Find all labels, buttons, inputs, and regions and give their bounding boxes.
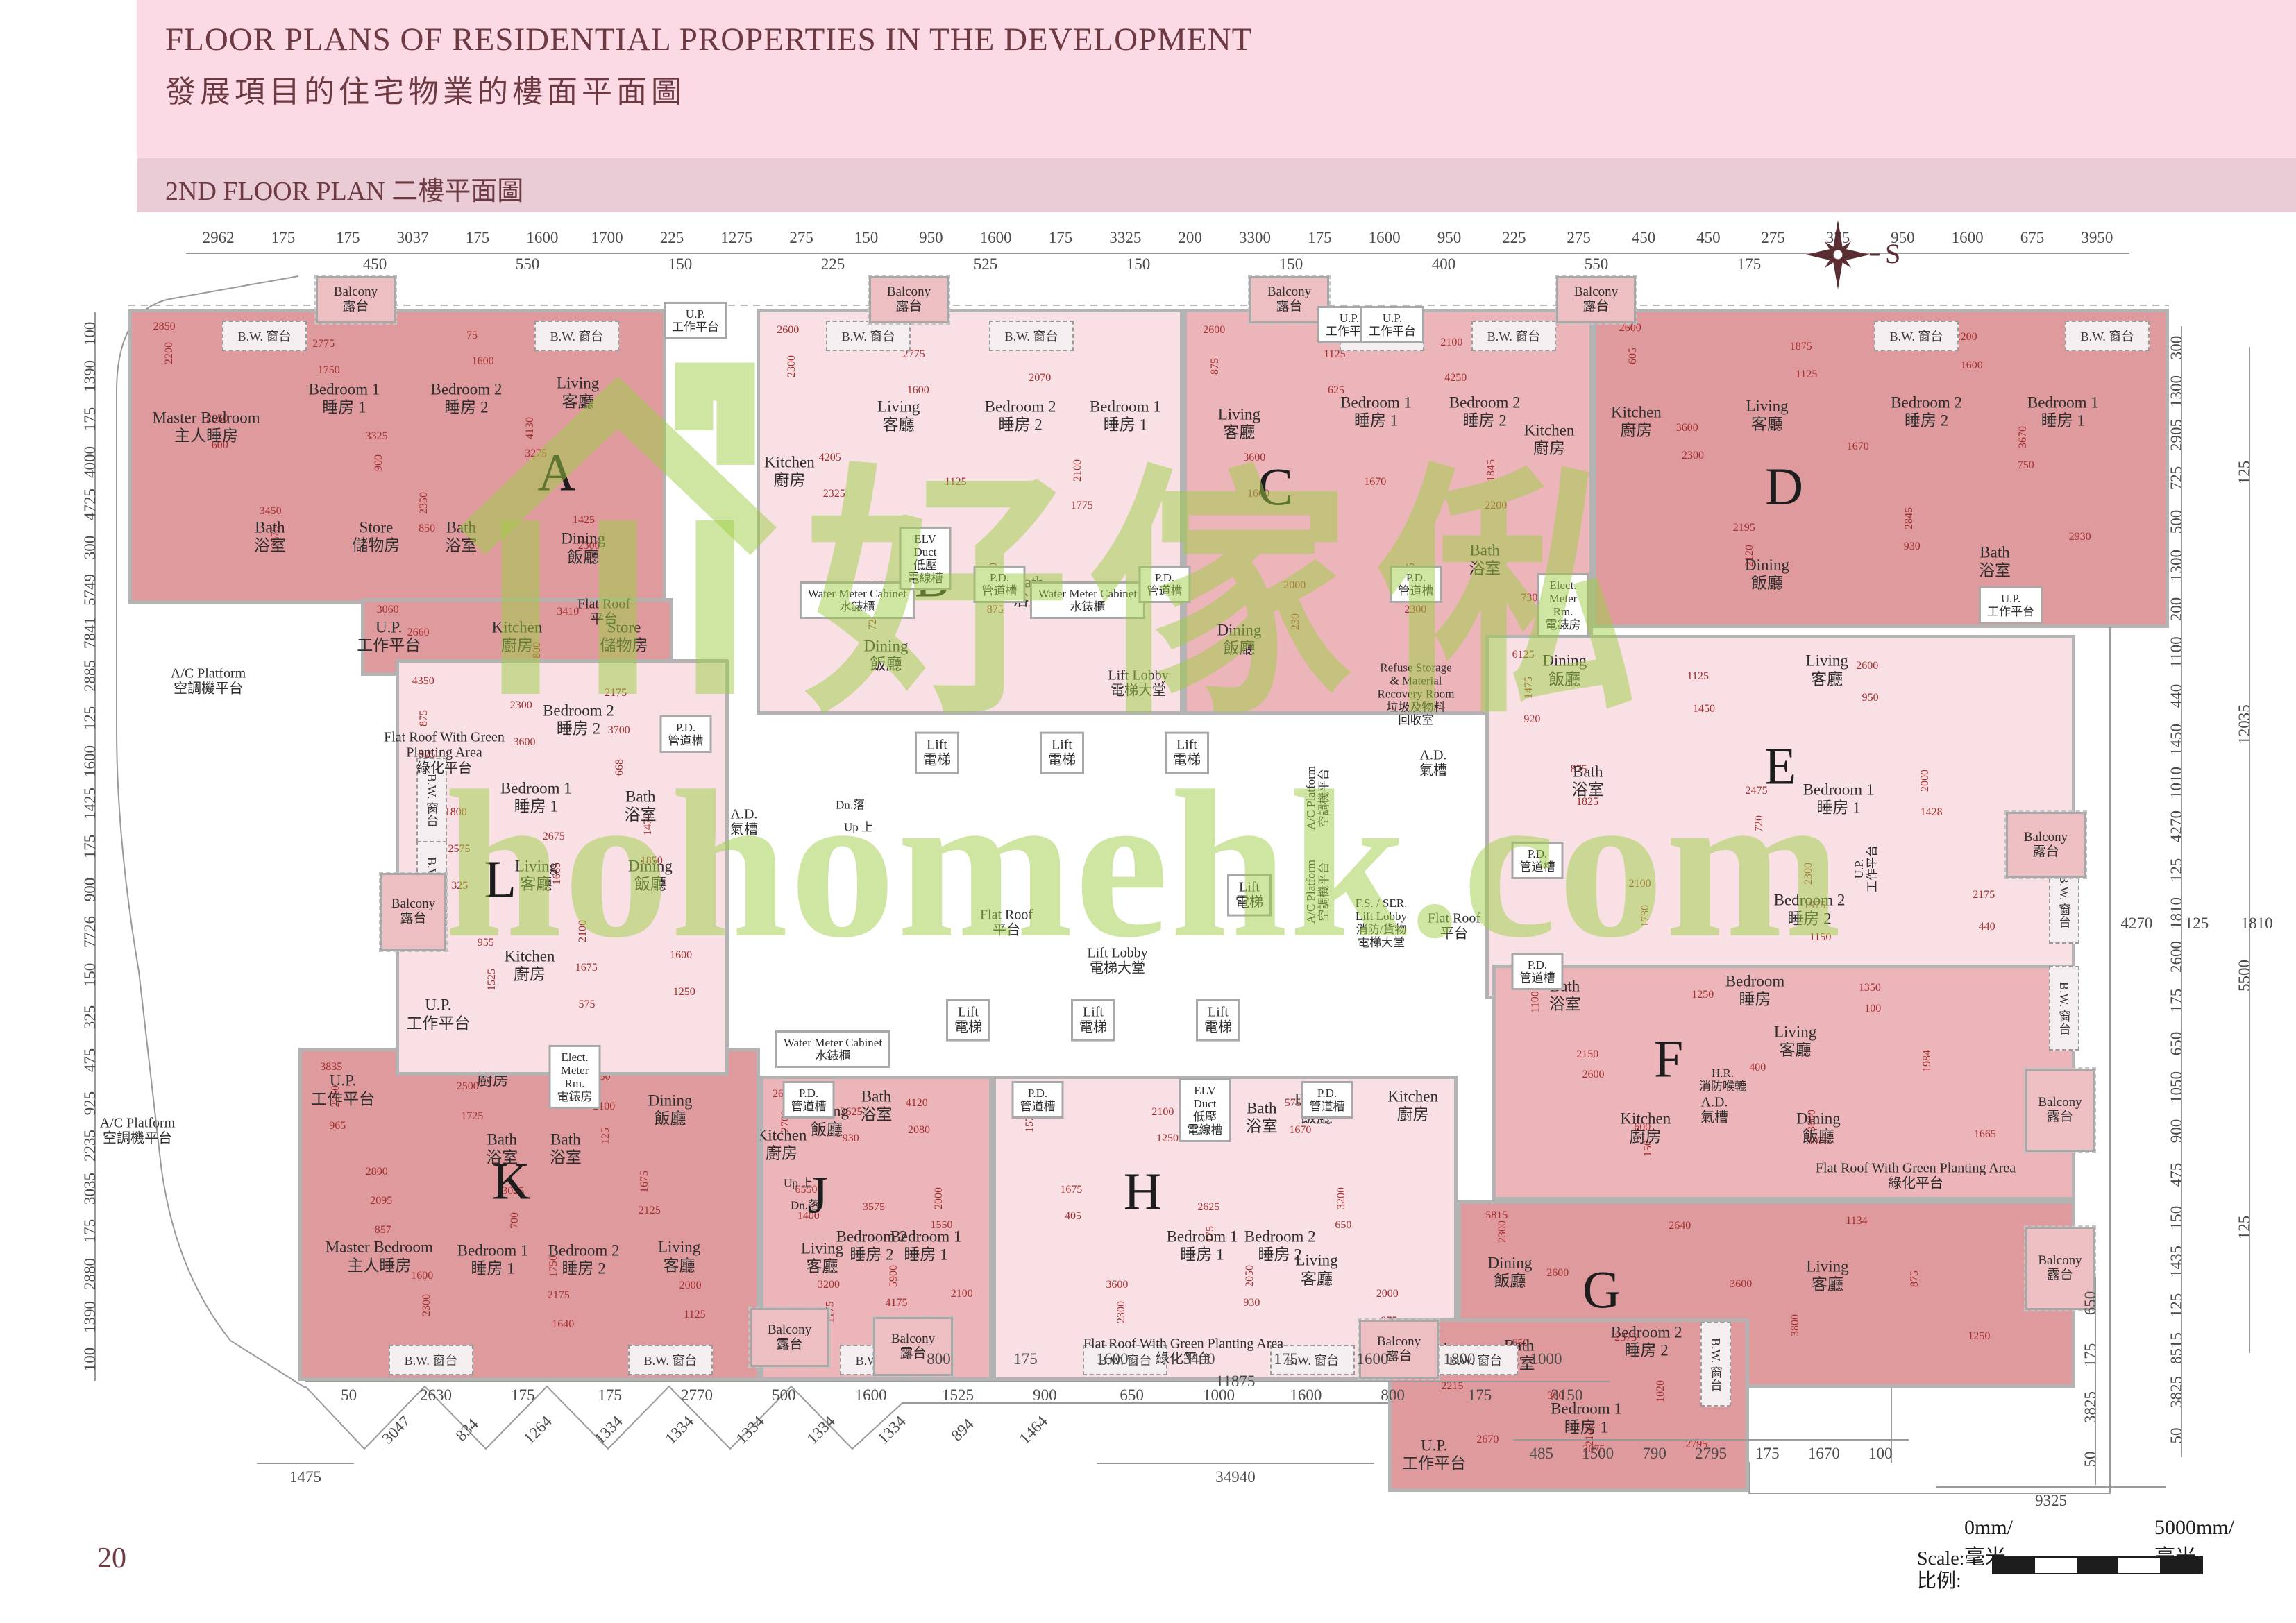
- dimension: 800: [1381, 1386, 1405, 1404]
- bay-window-label: B.W. 窗台: [989, 321, 1074, 351]
- dimension: 2175: [548, 1289, 570, 1302]
- dimension: 125: [2185, 915, 2209, 933]
- dimension: 875: [1209, 358, 1222, 375]
- dimension: 2930: [2069, 531, 2091, 543]
- dimension: 2195: [1733, 522, 1755, 534]
- room-label: Living客廳: [557, 375, 599, 411]
- a-c-platform-label: A/C Platform空調機平台: [100, 1116, 175, 1147]
- dimension: 730: [1521, 592, 1537, 604]
- compass-star-icon: [1796, 216, 1880, 293]
- dimension: 4130: [524, 417, 537, 439]
- p-d--label: P.D.管道槽: [783, 1081, 835, 1119]
- elv-label: ELVDuct低壓電線槽: [1179, 1078, 1231, 1142]
- dimension: 4120: [906, 1097, 928, 1110]
- dimension: 300: [81, 536, 99, 560]
- dimension: 850: [419, 522, 435, 535]
- dimension: 3800: [1789, 1314, 1802, 1336]
- floor-plan-page: FLOOR PLANS OF RESIDENTIAL PROPERTIES IN…: [0, 0, 2296, 1623]
- dimension: 125: [600, 1128, 612, 1144]
- dn--label: Dn.落: [791, 1198, 820, 1212]
- dimension: 2300: [421, 1294, 433, 1316]
- bay-window-label: B.W. 窗台: [628, 1345, 713, 1375]
- dimension: 2100: [1151, 1106, 1174, 1119]
- room-label: U.P.工作平台: [311, 1072, 375, 1109]
- dimension: 1600: [1097, 1350, 1129, 1368]
- dimension: 500: [2168, 510, 2186, 534]
- dimension: 3060: [377, 604, 399, 616]
- u-p--label: U.P.工作平台: [1360, 306, 1424, 343]
- room-label: Dining飯廳: [648, 1091, 693, 1128]
- dimension: 950: [1437, 229, 1462, 247]
- dimension: 720: [1753, 815, 1766, 832]
- dimension: 2100: [1072, 459, 1084, 482]
- dimension: 700: [509, 1212, 521, 1229]
- compass-south-label: S: [1885, 237, 1900, 270]
- dimension: 50: [2168, 1427, 2186, 1443]
- dimension: 4270: [2120, 915, 2152, 933]
- dimension: 175: [1737, 255, 1762, 273]
- dimension: 1600: [907, 384, 929, 397]
- dimension: 2000: [1919, 770, 1932, 792]
- dimension: 100: [81, 1348, 99, 1372]
- scale-caption: Scale: 比例:: [1917, 1548, 1964, 1592]
- dimension: 1134: [1846, 1215, 1867, 1227]
- dimension: 275: [789, 229, 813, 247]
- dimension: 650: [2082, 1291, 2100, 1315]
- dimension: 3400: [1183, 1350, 1215, 1368]
- dimension: 1600: [1290, 1386, 1322, 1404]
- room-label: Bedroom 1睡房 1: [1340, 393, 1412, 430]
- dimension: 1275: [720, 229, 752, 247]
- dimension: 668: [614, 759, 626, 776]
- header-band: FLOOR PLANS OF RESIDENTIAL PROPERTIES IN…: [137, 0, 2296, 158]
- dimension: 2885: [81, 660, 99, 692]
- dimension: 300: [2168, 336, 2186, 360]
- lift-label: Lift電梯: [1040, 732, 1084, 774]
- dimension: 1100: [1529, 991, 1542, 1012]
- dimension: 1675: [639, 1171, 651, 1193]
- dimension: 2350: [418, 492, 430, 514]
- dimension: 175: [598, 1386, 622, 1404]
- dimension: 125: [2168, 1293, 2186, 1317]
- dimension: 965: [329, 1120, 346, 1132]
- bay-window-label: B.W. 窗台: [826, 321, 911, 351]
- dimension: 175: [1274, 1350, 1298, 1368]
- room-label: Bedroom 1睡房 1: [1551, 1400, 1622, 1437]
- p-d--label: P.D.管道槽: [1012, 1081, 1064, 1119]
- balcony-label: Balcony露台: [2006, 812, 2086, 878]
- dimension: 2575: [448, 843, 471, 856]
- dimension: 2300: [1682, 450, 1704, 462]
- dimension: 1750: [318, 364, 340, 377]
- dimension: 2675: [543, 831, 565, 843]
- dimension: 1125: [1687, 670, 1709, 683]
- unit-letter-F: F: [1654, 1030, 1683, 1090]
- a-d--label: A.D.氣槽: [730, 807, 758, 838]
- dimension: 930: [1243, 1297, 1260, 1309]
- bay-window-label: B.W. 窗台: [534, 321, 619, 351]
- dimension: 125: [2236, 1216, 2254, 1240]
- dimension: 2200: [1485, 500, 1507, 512]
- elect--label: Elect.MeterRm.電錶房: [549, 1045, 601, 1109]
- room-label: Dining飯廳: [1745, 556, 1789, 593]
- dimension: 790: [1642, 1445, 1666, 1463]
- dimension: 175: [511, 1386, 535, 1404]
- dimension: 920: [1523, 713, 1540, 726]
- room-label: Kitchen廚房: [1524, 422, 1575, 459]
- dimension-line: [1097, 1463, 1374, 1464]
- dimension: 1450: [2168, 724, 2186, 756]
- dimension: 1700: [591, 229, 623, 247]
- dimension: 900: [1033, 1386, 1057, 1404]
- dimension: 1670: [1364, 476, 1386, 488]
- dimension: 1845: [1485, 459, 1498, 482]
- p-d--label: P.D.管道槽: [1512, 953, 1564, 990]
- dimension: 650: [1335, 1219, 1351, 1232]
- dimension: 1675: [1060, 1184, 1082, 1196]
- water-meter-cabinet-label: Water Meter Cabinet水錶櫃: [1030, 581, 1145, 619]
- elv-label: ELVDuct低壓電線槽: [900, 527, 952, 590]
- dimension: 955: [478, 937, 494, 949]
- room-label: Living客廳: [1806, 1258, 1848, 1295]
- dimension: 4270: [2168, 810, 2186, 842]
- dimension: 2600: [777, 324, 799, 337]
- dimension: 2670: [1476, 1434, 1499, 1446]
- unit-B: BKitchen廚房Living客廳Bedroom 2睡房 2Bedroom 1…: [757, 309, 1183, 715]
- room-label: Bath浴室: [625, 788, 657, 824]
- room-label: Dining飯廳: [1487, 1254, 1532, 1291]
- room-label: Master Bedroom主人睡房: [152, 409, 260, 446]
- dimension: 405: [1065, 1210, 1081, 1223]
- dimension: 650: [2168, 1032, 2186, 1056]
- room-label: Kitchen廚房: [1620, 1110, 1671, 1147]
- dimension: 1435: [2168, 1246, 2186, 1277]
- dimension: 2070: [1029, 372, 1051, 384]
- dimension: 1250: [1156, 1132, 1179, 1145]
- room-label: Living客廳: [658, 1239, 700, 1275]
- dimension: 1875: [1790, 341, 1812, 353]
- room-label: Bath浴室: [861, 1087, 893, 1124]
- dimension: 650: [1120, 1386, 1144, 1404]
- dimension: 150: [1279, 255, 1303, 273]
- dimension: 3600: [1106, 1279, 1128, 1291]
- room-label: Living客廳: [1774, 1023, 1816, 1060]
- dimension: 2905: [2168, 419, 2186, 451]
- flat-roof-label: Flat Roof平台: [980, 908, 1033, 939]
- dimension: 1800: [1444, 1350, 1476, 1368]
- dimension: 500: [772, 1386, 796, 1404]
- room-label: Kitchen廚房: [757, 1126, 807, 1163]
- balcony-label: Balcony露台: [750, 1308, 829, 1367]
- unit-letter-D: D: [1765, 457, 1803, 518]
- lift-label: Lift電梯: [1196, 999, 1240, 1042]
- dimension: 4725: [81, 488, 99, 520]
- room-label: Bedroom睡房: [1725, 973, 1785, 1010]
- room-label: Bedroom 2睡房 2: [1449, 393, 1521, 430]
- page-number: 20: [97, 1542, 126, 1575]
- dimension: 150: [854, 229, 879, 247]
- dimension: 2235: [81, 1130, 99, 1162]
- dimension: 3300: [1239, 229, 1271, 247]
- dimension: 2050: [1244, 1265, 1256, 1287]
- dimension: 100: [81, 322, 99, 346]
- dimension: 575: [579, 999, 596, 1011]
- dimension-line: [2181, 326, 2182, 1457]
- room-label: Master Bedroom主人睡房: [326, 1239, 433, 1275]
- dimension: 5900: [888, 1265, 900, 1287]
- water-meter-cabinet-label: Water Meter Cabinet水錶櫃: [800, 581, 915, 619]
- dimension: 3200: [1335, 1187, 1348, 1209]
- refuse-storage-label: Refuse Storage& MaterialRecovery Room垃圾及…: [1378, 661, 1455, 726]
- balcony-label: Balcony露台: [869, 276, 949, 323]
- dimension: 125: [81, 706, 99, 731]
- dimension: 2600: [1619, 322, 1641, 334]
- dimension: 1600: [1961, 359, 1983, 372]
- room-label: Bedroom 2睡房 2: [1611, 1323, 1682, 1360]
- dimension: 1390: [81, 1301, 99, 1333]
- balcony-label: Balcony露台: [1359, 1320, 1439, 1379]
- dimension: 125: [2236, 461, 2254, 485]
- dimension: 2100: [951, 1288, 973, 1300]
- room-label: Bedroom 2睡房 2: [543, 702, 614, 738]
- dimension: 2175: [605, 687, 627, 699]
- dimension: 1100: [2168, 637, 2186, 668]
- bay-window-label: B.W. 窗台: [1471, 321, 1556, 351]
- dimension: 440: [2168, 684, 2186, 708]
- u-p--label: U.P.工作平台: [664, 302, 727, 339]
- p-d--label: P.D.管道槽: [1139, 566, 1191, 603]
- dimension: 2300: [786, 355, 798, 377]
- dimension: 1010: [2168, 767, 2186, 799]
- scale-bar-strip: [1992, 1556, 2203, 1574]
- dimension: 100: [1864, 1003, 1881, 1015]
- room-label: Bedroom 2睡房 2: [1891, 394, 1962, 431]
- dimension: 3575: [863, 1201, 885, 1214]
- floor-subtitle: 2ND FLOOR PLAN 二樓平面圖: [165, 169, 523, 207]
- unit-A: AMaster Bedroom主人睡房Bedroom 1睡房 1Bedroom …: [128, 309, 666, 604]
- lift-label: Lift電梯: [1071, 999, 1115, 1042]
- dimension: 175: [81, 407, 99, 432]
- room-label: Bath浴室: [1469, 541, 1501, 578]
- room-label: Living客廳: [515, 857, 557, 894]
- room-label: Dining飯廳: [561, 530, 605, 567]
- dimension: 175: [2082, 1343, 2100, 1367]
- dimension: 875: [987, 604, 1004, 616]
- u-p--label: U.P.工作平台: [1979, 586, 2043, 624]
- dimension: 485: [1529, 1445, 1553, 1463]
- unit-letter-L: L: [484, 849, 516, 910]
- bay-window-label: B.W. 窗台: [2049, 966, 2079, 1051]
- room-label: Dining飯廳: [1796, 1110, 1841, 1147]
- balcony-label: Balcony露台: [380, 873, 446, 951]
- dimension: 4000: [81, 446, 99, 478]
- dimension: 2800: [366, 1166, 388, 1178]
- a-c-platform-label: A/C Platform空調機平台: [1304, 860, 1331, 924]
- dimension: 150: [2168, 1206, 2186, 1230]
- dimension: 7726: [81, 916, 99, 948]
- dimension: 1450: [1693, 703, 1715, 715]
- dimension: 2095: [370, 1195, 392, 1207]
- dimension: 150: [81, 963, 99, 987]
- room-label: Store儲物房: [352, 518, 400, 555]
- dimension: 2200: [163, 342, 176, 364]
- room-label: U.P.工作平台: [357, 619, 421, 656]
- room-label: Kitchen廚房: [1611, 403, 1662, 440]
- dimension: 475: [2168, 1162, 2186, 1187]
- balcony-label: Balcony露台: [2025, 1069, 2095, 1152]
- room-label: Dining飯廳: [864, 637, 909, 674]
- dimension: 2300: [1404, 604, 1426, 616]
- dimension: 125: [2168, 858, 2186, 882]
- page-title-chinese: 發展項目的住宅物業的樓面平面圖: [165, 67, 686, 111]
- a-d--label: A.D.氣槽: [1700, 1095, 1728, 1126]
- dimension: 325: [451, 880, 468, 892]
- a-c-platform-label: A/C Platform空調機平台: [171, 666, 246, 697]
- dimension: 3325: [366, 430, 388, 443]
- dimension: 875: [1909, 1271, 1921, 1287]
- dimension: 2300: [1803, 863, 1815, 885]
- dimension: 225: [821, 255, 845, 273]
- dimension: 3825: [2082, 1391, 2100, 1423]
- p-d--label: P.D.管道槽: [974, 566, 1026, 603]
- room-label: Bedroom 2睡房 2: [985, 398, 1056, 434]
- room-label: Dining飯廳: [1542, 652, 1587, 689]
- dimension: 2770: [681, 1386, 713, 1404]
- room-label: Bedroom 1睡房 1: [1090, 398, 1161, 434]
- dimension: 2080: [908, 1124, 930, 1137]
- dimension: 3150: [1551, 1386, 1582, 1404]
- room-label: Bedroom 1睡房 1: [309, 380, 380, 417]
- room-label: Bedroom 1睡房 1: [1167, 1227, 1238, 1264]
- dimension: 34940: [1215, 1468, 1256, 1486]
- room-label: Living客廳: [1295, 1252, 1337, 1289]
- dimension: 4350: [412, 675, 434, 688]
- dimension: 2300: [510, 699, 532, 712]
- dimension: 900: [81, 877, 99, 901]
- unit-K: KU.P.工作平台Kitchen廚房Bath浴室Bath浴室Dining飯廳Ma…: [298, 1048, 760, 1381]
- dimension: 3600: [514, 736, 536, 749]
- up--label: Up 上: [784, 1176, 813, 1189]
- u-p--label: U.P.工作平台: [1852, 845, 1879, 892]
- room-label: Bath浴室: [550, 1131, 582, 1168]
- dimension: 175: [1308, 229, 1332, 247]
- dimension: 1600: [1952, 229, 1984, 247]
- dimension: 1670: [1808, 1445, 1840, 1463]
- room-label: Kitchen廚房: [1387, 1087, 1438, 1124]
- dimension: 2795: [1695, 1445, 1727, 1463]
- dimension: 550: [516, 255, 540, 273]
- dimension: 175: [271, 229, 296, 247]
- unit-letter-A: A: [538, 443, 576, 504]
- dimension: 3410: [557, 606, 579, 618]
- dimension: 1525: [486, 969, 498, 991]
- flat-roof-with-green-label: Flat Roof With GreenPlanting Area綠化平台: [384, 729, 505, 776]
- flat-roof-with-green-planting-area-label: Flat Roof With Green Planting Area綠化平台: [1816, 1161, 2016, 1192]
- dimension: 1600: [81, 745, 99, 777]
- dimension: 1775: [1071, 500, 1093, 512]
- room-label: Bedroom 1睡房 1: [457, 1241, 529, 1278]
- balcony-label: Balcony露台: [316, 276, 396, 323]
- dimension: 175: [466, 229, 490, 247]
- dimension: 175: [81, 835, 99, 859]
- room-label: Bedroom 1睡房 1: [1803, 781, 1875, 817]
- unit-letter-H: H: [1124, 1162, 1162, 1223]
- dimension: 950: [1862, 692, 1879, 704]
- dimension: 3825: [2168, 1376, 2186, 1408]
- unit-D: DKitchen廚房Living客廳Bedroom 2睡房 2Bedroom 1…: [1593, 309, 2169, 628]
- a-c-platform-label: A/C Platform空調機平台: [1304, 766, 1331, 830]
- p-d--label: P.D.管道槽: [660, 715, 712, 753]
- dimension: 3600: [1730, 1278, 1752, 1291]
- dimension: 1250: [1968, 1330, 1990, 1343]
- dimension: 1475: [289, 1468, 321, 1486]
- dimension: 1675: [575, 962, 598, 974]
- room-label: Bedroom 2睡房 2: [548, 1241, 620, 1278]
- dimension: 2300: [1496, 1221, 1509, 1243]
- dimension: 900: [2168, 1119, 2186, 1144]
- dimension: 175: [1755, 1445, 1780, 1463]
- dimension: 1810: [2168, 897, 2186, 929]
- flat-roof-label: Flat Roof平台: [577, 597, 630, 628]
- p-d--label: P.D.管道槽: [1512, 842, 1564, 879]
- dimension: 440: [1979, 921, 1995, 933]
- lift-label: Lift電梯: [1165, 732, 1209, 774]
- dimension: 2300: [1115, 1301, 1128, 1323]
- bay-window-label: B.W. 窗台: [1874, 321, 1959, 351]
- dimension: 175: [2168, 988, 2186, 1012]
- dimension: 2850: [153, 321, 176, 333]
- dimension: 2175: [1973, 889, 1995, 901]
- dimension: 1125: [945, 476, 966, 488]
- dimension: 225: [660, 229, 684, 247]
- room-label: Living客廳: [1746, 397, 1788, 434]
- dimension: 50: [341, 1386, 357, 1404]
- dimension: 925: [81, 1091, 99, 1115]
- p-d--label: P.D.管道槽: [1301, 1081, 1353, 1119]
- dimension-line: [257, 1463, 354, 1464]
- room-label: Bath浴室: [1246, 1099, 1278, 1136]
- dimension: 1350: [1859, 982, 1881, 994]
- dimension: 1810: [2241, 915, 2273, 933]
- dimension: 4250: [1444, 372, 1467, 384]
- dimension: 400: [1749, 1062, 1766, 1074]
- dimension: 875: [418, 710, 430, 726]
- dimension: 3325: [1109, 229, 1141, 247]
- floor-subtitle-band: 2ND FLOOR PLAN 二樓平面圖: [137, 158, 2296, 212]
- dimension: 450: [1632, 229, 1656, 247]
- dimension: 1640: [552, 1318, 574, 1331]
- dimension: 12035: [2236, 704, 2254, 745]
- dimension: 230: [1290, 613, 1302, 630]
- lift-label: Lift電梯: [915, 732, 959, 774]
- dimension: 7841: [81, 617, 99, 649]
- dimension: 475: [81, 1048, 99, 1073]
- dimension: 605: [1627, 348, 1639, 364]
- dimension: 3035: [81, 1173, 99, 1205]
- room-label: Bedroom 1睡房 1: [890, 1227, 962, 1264]
- dimension: 675: [2020, 229, 2045, 247]
- dimension: 2640: [1669, 1220, 1691, 1232]
- f-s-ser--label: F.S. / SER.Lift Lobby消防/貨物電梯大堂: [1356, 897, 1408, 949]
- dimension: 1600: [1357, 1350, 1389, 1368]
- dimension: 2000: [933, 1187, 945, 1209]
- dimension: 1525: [942, 1386, 974, 1404]
- dimension: 2125: [639, 1205, 661, 1217]
- dimension: 1300: [2168, 375, 2186, 407]
- dimension: 2150: [1576, 1048, 1598, 1061]
- dimension: 4175: [886, 1297, 908, 1309]
- room-label: Living客廳: [1806, 652, 1848, 689]
